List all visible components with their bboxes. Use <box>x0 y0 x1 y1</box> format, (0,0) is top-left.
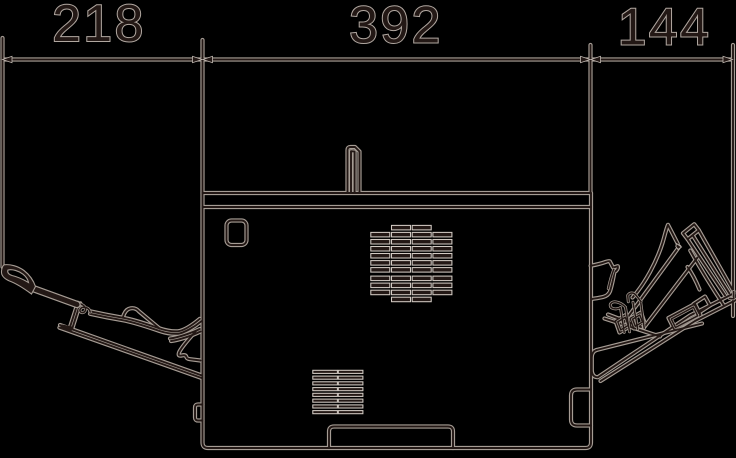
svg-text:392: 392 <box>349 0 442 54</box>
svg-text:218: 218 <box>52 0 145 52</box>
svg-text:144: 144 <box>618 0 711 56</box>
